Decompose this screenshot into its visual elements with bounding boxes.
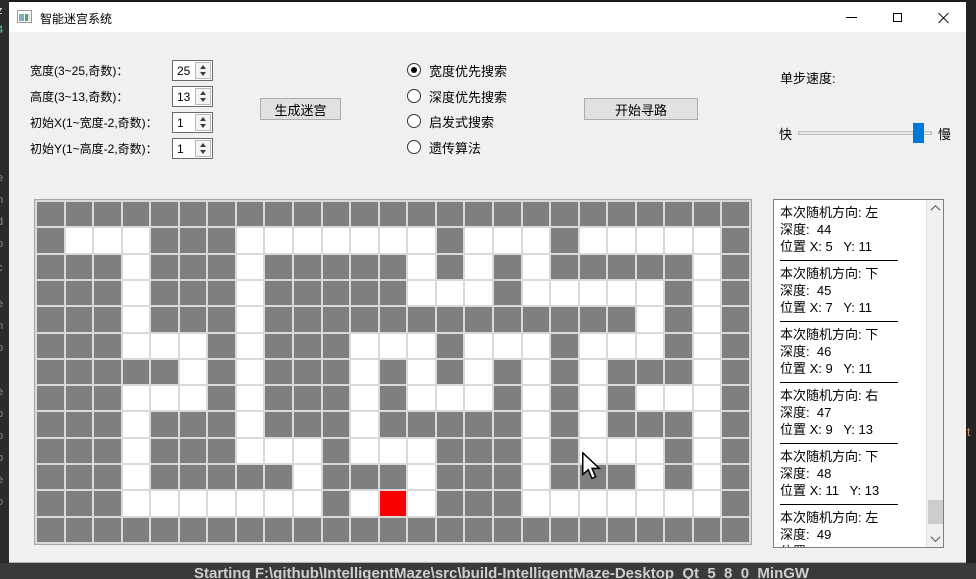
spin-up-icon [200, 65, 206, 69]
radio-heuristic-label: 启发式搜索 [429, 112, 494, 131]
width-spinbox[interactable]: 25 [172, 60, 213, 81]
maze-cell [66, 465, 93, 489]
maze-cell [665, 518, 692, 542]
maze-cell [551, 412, 578, 436]
maze-cell [123, 491, 150, 515]
maze-cell [208, 360, 235, 384]
maze-cell [37, 307, 64, 331]
width-value[interactable]: 25 [173, 61, 194, 80]
maze-cell [722, 465, 749, 489]
background-window-left-edge: z4endocenoepopeo [0, 0, 9, 579]
maze-cell [694, 465, 721, 489]
maze-cell [37, 255, 64, 279]
init-x-value[interactable]: 1 [173, 113, 194, 132]
maze-cell [123, 386, 150, 410]
spin-up-button[interactable] [196, 63, 210, 71]
maze-cell [265, 518, 292, 542]
maze-cell [94, 412, 121, 436]
maze-cell [523, 202, 550, 226]
log-depth-line: 深度: 49 [780, 526, 926, 543]
spin-down-icon [200, 72, 206, 76]
maze-cell [294, 334, 321, 358]
maze-cell [494, 518, 521, 542]
edge-text-fragment: e [0, 386, 3, 398]
maze-cell [323, 491, 350, 515]
maze-cell [551, 386, 578, 410]
maze-cell [523, 491, 550, 515]
maze-cell [551, 518, 578, 542]
speed-slider-handle[interactable] [913, 123, 924, 143]
maze-cell [523, 412, 550, 436]
maze-cell [265, 334, 292, 358]
maze-cell [408, 412, 435, 436]
maze-cell [608, 202, 635, 226]
maze-cell [694, 360, 721, 384]
maze-cell [494, 412, 521, 436]
maze-cell [123, 465, 150, 489]
maze-cell [123, 228, 150, 252]
maze-cell [237, 439, 264, 463]
maze-cell [437, 334, 464, 358]
maze-cell [151, 412, 178, 436]
maze-cell [665, 360, 692, 384]
maze-cell [66, 255, 93, 279]
minimize-button[interactable] [828, 2, 874, 32]
maze-cell [180, 412, 207, 436]
maze-cell [694, 518, 721, 542]
maze-cell [551, 281, 578, 305]
maze-cell [66, 386, 93, 410]
maze-cell [351, 518, 378, 542]
maze-cell [494, 439, 521, 463]
maze-cell [151, 439, 178, 463]
maze-cell [551, 255, 578, 279]
log-direction-line: 本次随机方向: 左 [780, 509, 926, 526]
maze-cell [294, 518, 321, 542]
maze-cell [323, 360, 350, 384]
maze-cell [437, 412, 464, 436]
maze-cell [237, 255, 264, 279]
maze-cell [722, 281, 749, 305]
maze-cell [408, 281, 435, 305]
log-direction-line: 本次随机方向: 左 [780, 204, 926, 221]
maze-cell [37, 491, 64, 515]
maze-cell [94, 491, 121, 515]
maze-cell [265, 228, 292, 252]
init-y-value[interactable]: 1 [173, 139, 194, 158]
maze-cell [494, 228, 521, 252]
spin-down-icon [200, 150, 206, 154]
maze-cell [265, 491, 292, 515]
log-position-line: 位置 X: 9 Y: 11 [780, 360, 926, 377]
maze-cell [151, 334, 178, 358]
maze-cell [722, 518, 749, 542]
maze-cell [66, 307, 93, 331]
maze-cell [637, 281, 664, 305]
maze-cell [66, 412, 93, 436]
chevron-up-icon [931, 205, 941, 215]
maze-cell [551, 360, 578, 384]
maze-cell [523, 386, 550, 410]
maze-cell [637, 360, 664, 384]
maze-cell [123, 360, 150, 384]
scrollbar-thumb[interactable] [928, 500, 943, 524]
spin-down-icon [200, 124, 206, 128]
maze-cell [66, 518, 93, 542]
radio-icon [407, 63, 421, 77]
edge-text-fragment: o [0, 496, 3, 508]
maze-cell [580, 255, 607, 279]
spin-up-icon [200, 91, 206, 95]
close-button[interactable] [920, 2, 966, 32]
radio-bfs[interactable]: 宽度优先搜索 [407, 62, 507, 78]
log-position-line: 位置 X: 9 Y: 13 [780, 421, 926, 438]
maze-cell [722, 386, 749, 410]
start-pathfinding-button[interactable]: 开始寻路 [584, 98, 698, 120]
edge-text-fragment: d [0, 216, 3, 228]
log-depth-line: 深度: 46 [780, 343, 926, 360]
maze-cell [208, 202, 235, 226]
height-field-row: 高度(3~13,奇数)： [30, 86, 128, 107]
maze-cell [380, 334, 407, 358]
spin-down-button[interactable] [196, 149, 210, 157]
maze-cell [208, 228, 235, 252]
maze-cell [265, 281, 292, 305]
maze-cell [494, 281, 521, 305]
log-direction-line: 本次随机方向: 右 [780, 387, 926, 404]
maze-cell [665, 334, 692, 358]
scroll-up-button[interactable] [927, 200, 944, 217]
maze-cell [408, 360, 435, 384]
maze-cell [694, 334, 721, 358]
log-entry: 本次随机方向: 下深度: 45位置 X: 7 Y: 11 [780, 265, 926, 322]
maze-cell [408, 255, 435, 279]
maze-cell [665, 465, 692, 489]
maze-cell [637, 439, 664, 463]
maze-cell [437, 360, 464, 384]
log-panel[interactable]: 本次随机方向: 左深度: 44位置 X: 5 Y: 11本次随机方向: 下深度:… [773, 199, 944, 548]
log-position-line: 位置 X: 7 Y: 11 [780, 299, 926, 316]
maze-cell [465, 307, 492, 331]
spin-up-button[interactable] [196, 89, 210, 97]
maze-cell [151, 255, 178, 279]
maze-cell [237, 228, 264, 252]
maze-cell [323, 307, 350, 331]
height-label: 高度(3~13,奇数)： [30, 88, 128, 105]
maze-cell [523, 465, 550, 489]
maze-cell [665, 228, 692, 252]
maze-cell [237, 412, 264, 436]
maze-cell [323, 334, 350, 358]
maze-cell [637, 334, 664, 358]
maze-cell [494, 307, 521, 331]
maze-cell [265, 412, 292, 436]
edge-text-fragment: o [0, 238, 3, 250]
step-speed-label: 单步速度: [780, 68, 836, 87]
init-y-spinbox[interactable]: 1 [172, 138, 213, 159]
init-x-field-row: 初始X(1~宽度-2,奇数)： [30, 112, 158, 133]
background-console-strip: Starting F:\github\IntelligentMaze\src\b… [0, 563, 976, 579]
spin-down-button[interactable] [196, 123, 210, 131]
maze-cell [665, 281, 692, 305]
maze-cell [237, 465, 264, 489]
maze-cell [237, 360, 264, 384]
maze-cell [94, 228, 121, 252]
maze-cell [437, 386, 464, 410]
maze-cell [380, 255, 407, 279]
radio-heuristic[interactable]: 启发式搜索 [407, 113, 494, 129]
log-depth-line: 深度: 44 [780, 221, 926, 238]
maze-cell [408, 202, 435, 226]
maze-cell [694, 307, 721, 331]
maze-cell [123, 255, 150, 279]
maze-cell [694, 386, 721, 410]
radio-icon [407, 89, 421, 103]
maze-cell [637, 491, 664, 515]
maze-cell [323, 465, 350, 489]
maze-cell [123, 202, 150, 226]
maze-cell [665, 439, 692, 463]
log-entry: 本次随机方向: 左深度: 44位置 X: 5 Y: 11 [780, 204, 926, 261]
maze-cell [580, 491, 607, 515]
maze-cell [180, 307, 207, 331]
maze-cell [637, 255, 664, 279]
log-position-line: 位置 X: 11 Y: 13 [780, 482, 926, 499]
edge-text-fragment: 4 [0, 24, 3, 36]
maze-cell [465, 465, 492, 489]
maze-cell [66, 281, 93, 305]
maze-cell [180, 465, 207, 489]
edge-text-fragment: t [967, 425, 970, 439]
maze-cell [323, 412, 350, 436]
maze-cell [722, 360, 749, 384]
maze-cell [408, 439, 435, 463]
log-direction-line: 本次随机方向: 下 [780, 265, 926, 282]
maze-cell [551, 439, 578, 463]
maze-cell [265, 202, 292, 226]
maze-cell [294, 465, 321, 489]
maze-cell [180, 334, 207, 358]
maze-cell [465, 518, 492, 542]
log-separator [780, 321, 898, 322]
maze-cell [37, 465, 64, 489]
maze-cell [380, 307, 407, 331]
maze-cell [151, 281, 178, 305]
log-separator [780, 443, 898, 444]
maze-cell [608, 281, 635, 305]
edge-text-fragment: n [0, 194, 3, 206]
spin-up-button[interactable] [196, 141, 210, 149]
maze-cell [208, 386, 235, 410]
maze-cell [494, 491, 521, 515]
maze-cell [722, 439, 749, 463]
maze-cell [323, 228, 350, 252]
maze-cell [608, 465, 635, 489]
maze-cell [323, 518, 350, 542]
generate-maze-button[interactable]: 生成迷宫 [260, 98, 341, 120]
maze-cell [380, 518, 407, 542]
edge-text-fragment: e [0, 172, 3, 184]
speed-slider-track[interactable] [798, 131, 932, 135]
maze-cell [37, 386, 64, 410]
maze-cell [351, 360, 378, 384]
maze-cell [66, 439, 93, 463]
window-title: 智能迷宫系统 [40, 10, 112, 27]
log-scrollbar[interactable] [926, 200, 943, 547]
maze-cell [323, 255, 350, 279]
maze-cell [437, 255, 464, 279]
slow-label: 慢 [938, 124, 951, 143]
maze-cell [66, 202, 93, 226]
spin-down-button[interactable] [196, 71, 210, 79]
scroll-down-button[interactable] [927, 530, 944, 547]
log-entries: 本次随机方向: 左深度: 44位置 X: 5 Y: 11本次随机方向: 下深度:… [774, 200, 926, 547]
maze-cell [151, 228, 178, 252]
maze-cell [551, 202, 578, 226]
maze-cell [294, 360, 321, 384]
maze-cell [608, 307, 635, 331]
maze-cell [408, 491, 435, 515]
maze-cell [208, 412, 235, 436]
maze-cell [151, 386, 178, 410]
maze-cell [580, 228, 607, 252]
maze-cell [94, 518, 121, 542]
maze-cell [37, 518, 64, 542]
maze-cell [294, 255, 321, 279]
maze-cell [351, 228, 378, 252]
maze-cell [608, 491, 635, 515]
edge-text-fragment: p [0, 408, 3, 420]
maze-cell [66, 491, 93, 515]
maze-cell [380, 412, 407, 436]
init-x-spinbox[interactable]: 1 [172, 112, 213, 133]
maze-cell [94, 307, 121, 331]
maximize-button[interactable] [874, 2, 920, 32]
log-depth-line: 深度: 45 [780, 282, 926, 299]
maze-cell [408, 386, 435, 410]
maze-cell [523, 255, 550, 279]
maze-cell [66, 334, 93, 358]
maze-cell [551, 491, 578, 515]
maze-cell [580, 386, 607, 410]
maze-cell [351, 202, 378, 226]
maze-cell [523, 518, 550, 542]
maze-cell [151, 518, 178, 542]
maze-cell [665, 307, 692, 331]
edge-text-fragment: o [0, 430, 3, 442]
log-entry: 本次随机方向: 左深度: 49位置 X: 11 Y: 11 [780, 509, 926, 547]
maze-cell [208, 281, 235, 305]
maze-cell [551, 465, 578, 489]
maze-cell [237, 491, 264, 515]
maze-cell [237, 334, 264, 358]
maze-cell [437, 518, 464, 542]
maze-cell [437, 465, 464, 489]
maze-cell [94, 386, 121, 410]
maze-cell [694, 491, 721, 515]
background-window-right-edge: t [966, 0, 976, 579]
maze-cell [523, 439, 550, 463]
maze-cell [151, 465, 178, 489]
minimize-icon [846, 17, 857, 18]
maze-cell [380, 228, 407, 252]
maze-cell [608, 360, 635, 384]
log-position-line: 位置 X: 5 Y: 11 [780, 238, 926, 255]
log-direction-line: 本次随机方向: 下 [780, 448, 926, 465]
log-separator [780, 504, 898, 505]
radio-icon [407, 140, 421, 154]
maze-cell [580, 281, 607, 305]
log-direction-line: 本次随机方向: 下 [780, 326, 926, 343]
maze-cell [351, 439, 378, 463]
width-field-row: 宽度(3~25,奇数)： [30, 60, 128, 81]
radio-genetic[interactable]: 遗传算法 [407, 139, 481, 155]
maze-cell [608, 439, 635, 463]
maze-cell [123, 307, 150, 331]
spin-down-button[interactable] [196, 97, 210, 105]
log-entry: 本次随机方向: 下深度: 48位置 X: 11 Y: 13 [780, 448, 926, 505]
maze-cell [408, 228, 435, 252]
maze-cell [151, 360, 178, 384]
maze-cell [408, 334, 435, 358]
maze-cell [180, 202, 207, 226]
maze-cell [722, 202, 749, 226]
maze-cell [694, 412, 721, 436]
maze-cell [94, 465, 121, 489]
maze-cell [294, 386, 321, 410]
maze-cell [123, 518, 150, 542]
maze-cell [180, 386, 207, 410]
maze-cell [523, 228, 550, 252]
edge-text-fragment: o [0, 342, 3, 354]
speed-slider-row: 快 慢 [779, 121, 951, 145]
maze-cell [694, 281, 721, 305]
spin-up-button[interactable] [196, 115, 210, 123]
maze-cell [694, 228, 721, 252]
maze-cell [123, 334, 150, 358]
height-value[interactable]: 13 [173, 87, 194, 106]
maze-cell [465, 439, 492, 463]
maze-cell [408, 465, 435, 489]
spin-down-icon [200, 98, 206, 102]
radio-dfs[interactable]: 深度优先搜索 [407, 88, 507, 104]
maze-cell [437, 439, 464, 463]
maze-cell [237, 202, 264, 226]
maze-cell [637, 307, 664, 331]
maze-cell [237, 281, 264, 305]
maze-cell [437, 228, 464, 252]
maze-cell [722, 491, 749, 515]
maze-cell [323, 281, 350, 305]
maze-cell [265, 465, 292, 489]
maze-cell [722, 255, 749, 279]
maze-cell [265, 386, 292, 410]
edge-text-fragment: e [0, 298, 3, 310]
maze-cell [237, 386, 264, 410]
maze-cell [294, 281, 321, 305]
maze-cell [437, 307, 464, 331]
maze-cell [351, 412, 378, 436]
maze-cell [665, 412, 692, 436]
maze-cell [465, 360, 492, 384]
maze-cell [637, 202, 664, 226]
maze-cell [722, 307, 749, 331]
maze-cell [494, 465, 521, 489]
maze-cell [151, 202, 178, 226]
maze-cell [180, 439, 207, 463]
maze-cell [722, 334, 749, 358]
height-spinbox[interactable]: 13 [172, 86, 213, 107]
